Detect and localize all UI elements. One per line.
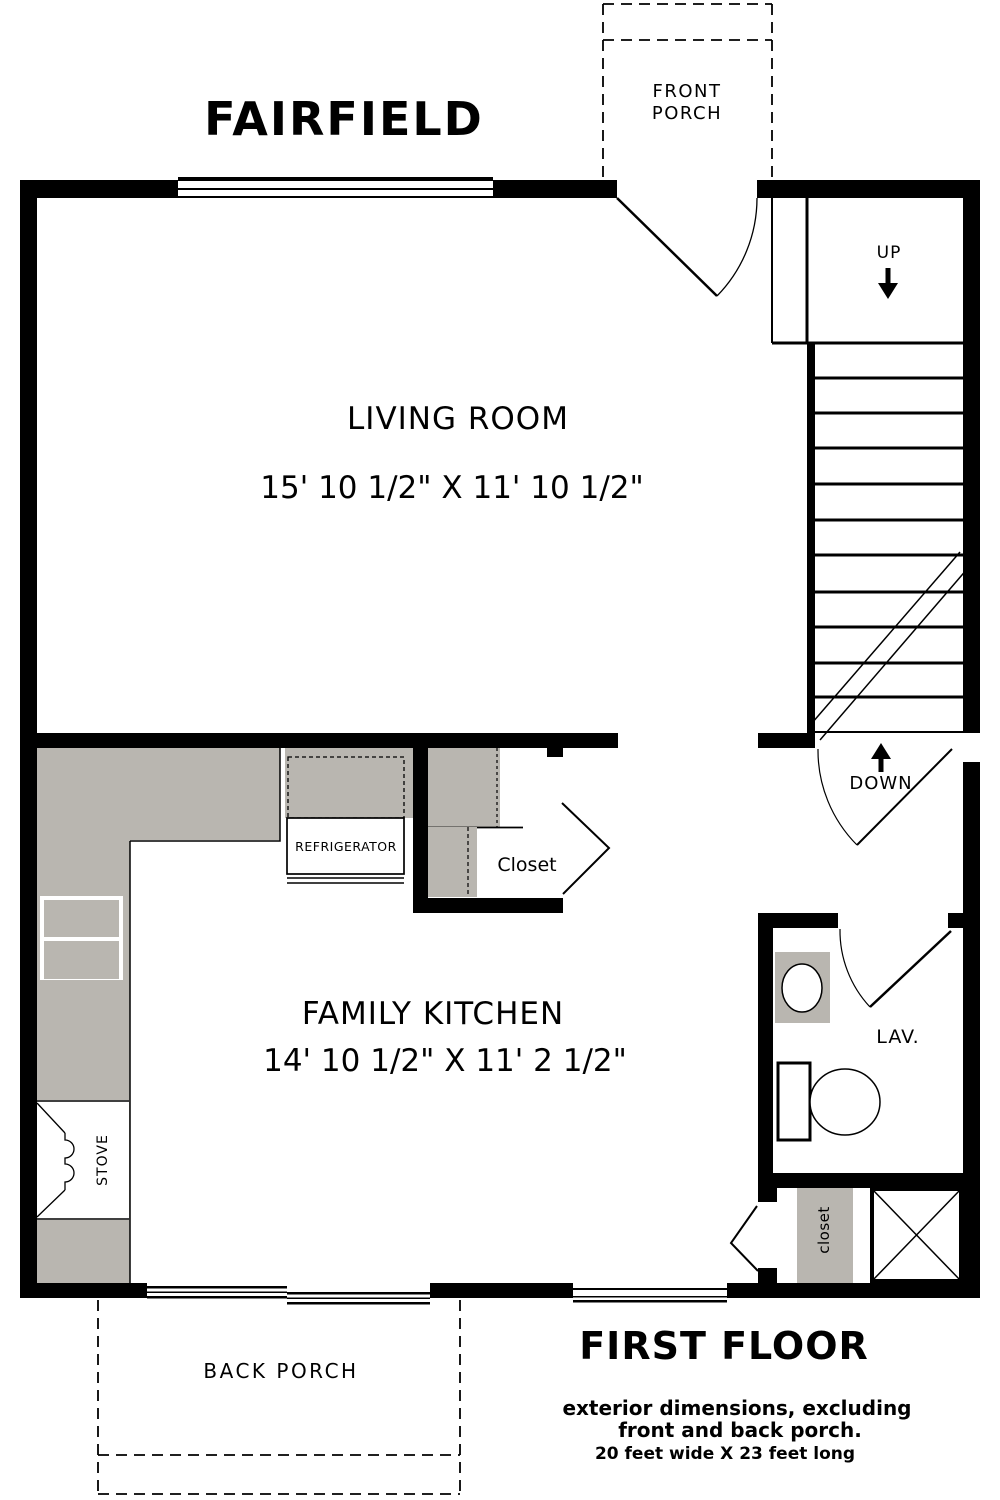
living-room-dimensions: 15' 10 1/2" X 11' 10 1/2" <box>260 470 644 506</box>
footer-note-line3: 20 feet wide X 23 feet long <box>595 1444 855 1464</box>
kitchen-label: FAMILY KITCHEN <box>302 996 564 1032</box>
living-room-label: LIVING ROOM <box>347 401 569 437</box>
front-door <box>617 198 757 296</box>
front-porch: FRONT PORCH <box>603 4 772 182</box>
stair-door-swing <box>818 749 857 845</box>
stairs-up-label: UP <box>877 243 902 263</box>
kitchen-window-left <box>147 1286 287 1299</box>
back-porch-label: BACK PORCH <box>203 1359 358 1383</box>
up-arrow-icon <box>878 268 898 299</box>
back-porch: BACK PORCH <box>98 1300 460 1497</box>
lavatory: LAV. <box>775 929 951 1140</box>
stairs-down-label: DOWN <box>849 773 912 794</box>
footer-note-line2: front and back porch. <box>618 1418 862 1442</box>
footer: FIRST FLOOR exterior dimensions, excludi… <box>562 1324 911 1464</box>
lav-door-leaf <box>870 931 951 1007</box>
closet-door-icon <box>562 803 609 894</box>
footer-note-line1: exterior dimensions, excluding <box>562 1396 911 1420</box>
back-closet-label: closet <box>815 1206 833 1254</box>
stove: STOVE <box>37 1100 129 1220</box>
plan-title: FAIRFIELD <box>204 92 484 146</box>
front-porch-label-line1: FRONT <box>653 81 722 102</box>
counter-top-run <box>37 748 280 840</box>
kitchen-counters: STOVE <box>37 748 280 1283</box>
floor-plan-page: FAIRFIELD FRONT PORCH BACK PORCH <box>0 0 1000 1500</box>
stair-treads <box>815 378 963 732</box>
refrigerator-label: REFRIGERATOR <box>295 839 397 854</box>
front-door-swing <box>717 198 757 296</box>
stair-bottom-door <box>818 749 952 845</box>
chase-x-box <box>872 1189 961 1281</box>
hall-window <box>573 1288 727 1303</box>
back-door-icon <box>731 1206 758 1271</box>
floor-plan-drawing: FAIRFIELD FRONT PORCH BACK PORCH <box>0 0 1000 1500</box>
floor-title: FIRST FLOOR <box>579 1324 869 1368</box>
down-arrow-icon <box>871 743 891 772</box>
kitchen-window-right <box>287 1292 430 1305</box>
living-room-window <box>178 177 493 198</box>
lav-door <box>840 929 951 1007</box>
lavatory-label: LAV. <box>876 1026 919 1048</box>
toilet <box>778 1063 880 1140</box>
sink <box>775 952 830 1023</box>
kitchen-dimensions: 14' 10 1/2" X 11' 2 1/2" <box>263 1043 627 1079</box>
closet-label: Closet <box>497 854 556 876</box>
stair-break-lines <box>812 552 968 740</box>
stove-label: STOVE <box>95 1134 111 1186</box>
kitchen-closet: Closet <box>428 748 609 897</box>
base-cabinet <box>40 896 123 980</box>
front-porch-label-line2: PORCH <box>652 103 722 124</box>
lav-door-swing <box>840 929 870 1007</box>
refrigerator: REFRIGERATOR <box>285 748 413 883</box>
front-door-leaf <box>617 198 717 296</box>
stair-door-leaf <box>857 749 952 845</box>
